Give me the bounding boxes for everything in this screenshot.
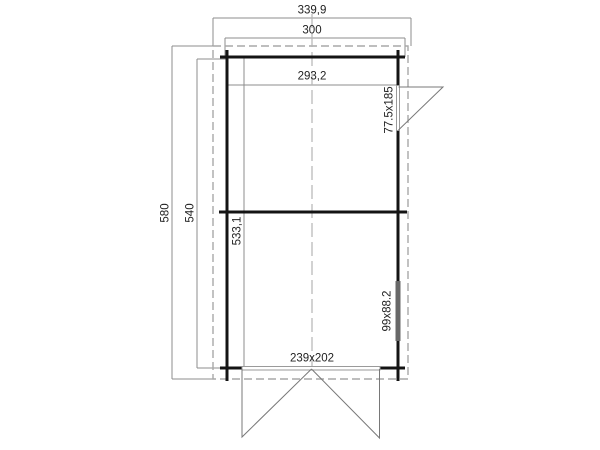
window-size-label: 99x88.2 — [382, 291, 394, 332]
side-door-sill — [397, 86, 400, 131]
side-door-swing — [399, 87, 444, 130]
dim-interior-depth-label: 533,1 — [232, 217, 244, 246]
side-door-size-label: 77.5x185 — [384, 86, 396, 133]
double-door-left-leaf-swing — [242, 369, 312, 437]
dim-wall-depth-label: 540 — [185, 203, 197, 222]
dim-overall-depth-label: 580 — [160, 203, 172, 222]
walls — [219, 50, 407, 381]
door-swings — [242, 87, 443, 438]
floor-plan-linework — [0, 0, 600, 450]
double-door-size-label: 239x202 — [290, 353, 334, 365]
floor-plan-drawing: 339,9 300 293,2 580 540 533,1 77.5x185 9… — [0, 0, 600, 450]
dim-wall-width-label: 300 — [302, 25, 321, 37]
dim-wall-width-line — [225, 38, 405, 57]
dim-interior-width-label: 293,2 — [298, 71, 327, 83]
dimension-lines — [172, 18, 411, 379]
dim-overall-width-label: 339,9 — [298, 5, 327, 17]
